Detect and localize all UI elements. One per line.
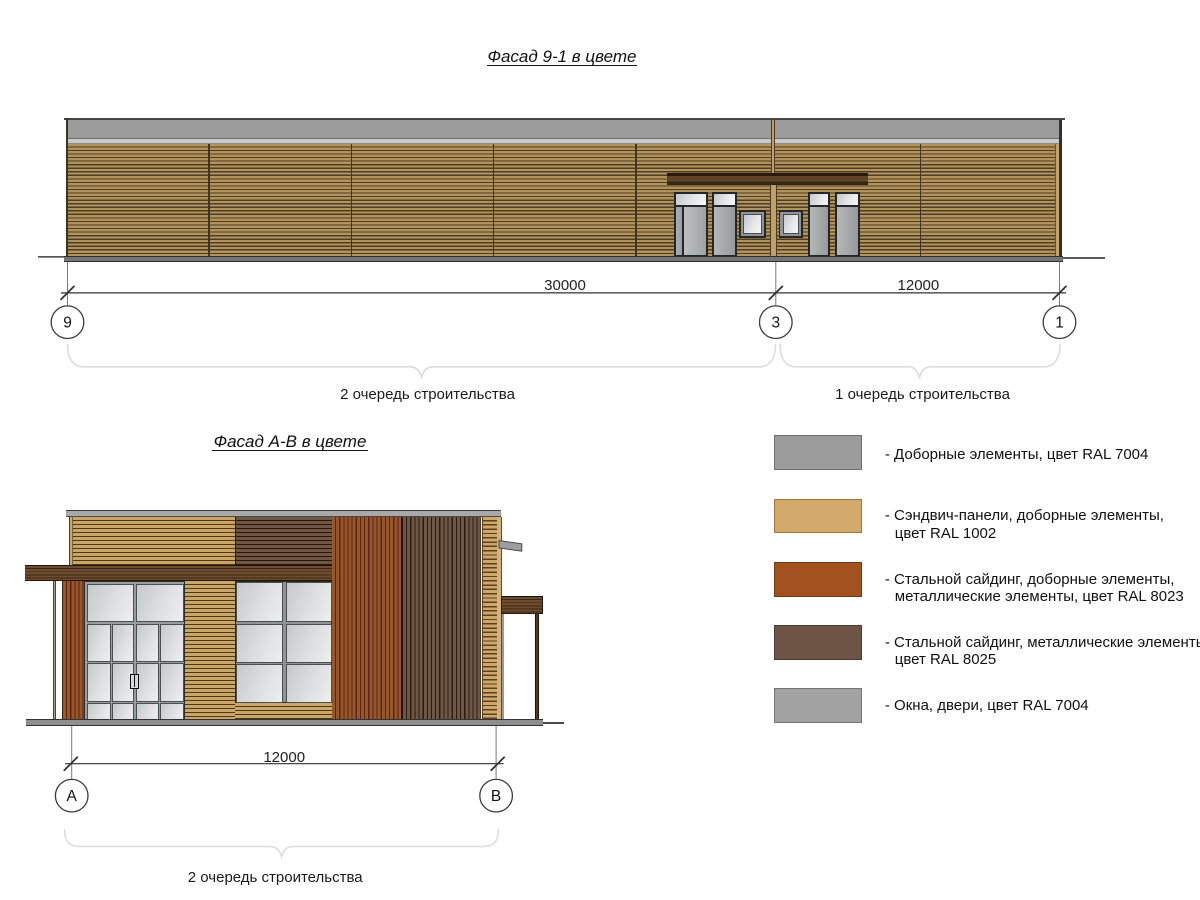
svg-text:1: 1 xyxy=(1055,315,1064,332)
svg-text:3: 3 xyxy=(771,315,780,332)
svg-text:А: А xyxy=(67,788,78,805)
svg-text:9: 9 xyxy=(63,315,72,332)
svg-text:В: В xyxy=(491,788,501,805)
